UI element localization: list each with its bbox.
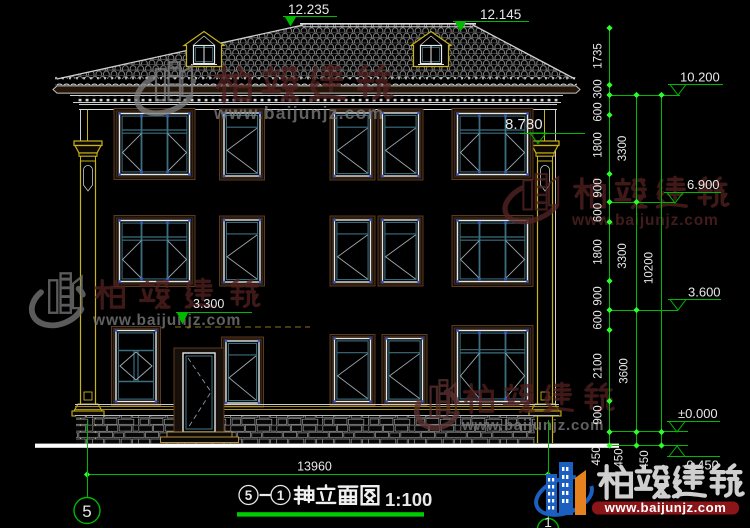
svg-text:12.235: 12.235 <box>288 2 329 17</box>
svg-text:1: 1 <box>277 488 285 503</box>
svg-text:900: 900 <box>593 286 605 305</box>
svg-text:3600: 3600 <box>619 358 631 384</box>
svg-text:www.baijunjz.com: www.baijunjz.com <box>213 103 384 123</box>
svg-text:www.baijunjz.com: www.baijunjz.com <box>604 500 727 515</box>
svg-text:www.baijunjz.com: www.baijunjz.com <box>461 417 604 434</box>
svg-text:±0.000: ±0.000 <box>678 406 718 421</box>
svg-text:12.145: 12.145 <box>480 7 521 22</box>
svg-text:3300: 3300 <box>617 243 629 269</box>
svg-text:2100: 2100 <box>593 353 605 379</box>
svg-text:900: 900 <box>593 405 605 424</box>
svg-text:5: 5 <box>245 488 253 503</box>
svg-text:13960: 13960 <box>297 460 332 474</box>
svg-text:3300: 3300 <box>617 136 629 162</box>
svg-text:3.300: 3.300 <box>193 297 224 311</box>
svg-text:5: 5 <box>82 502 91 521</box>
svg-text:600: 600 <box>593 102 605 121</box>
svg-text:300: 300 <box>593 79 605 98</box>
svg-text:10.200: 10.200 <box>680 70 720 85</box>
svg-text:6.900: 6.900 <box>687 177 720 192</box>
svg-text:450: 450 <box>591 446 603 465</box>
svg-text:1:100: 1:100 <box>385 489 432 510</box>
svg-text:600: 600 <box>593 310 605 329</box>
svg-text:450: 450 <box>614 448 626 467</box>
svg-text:1800: 1800 <box>593 239 605 265</box>
svg-text:600: 600 <box>593 203 605 222</box>
svg-text:3.600: 3.600 <box>688 285 721 300</box>
svg-text:1800: 1800 <box>593 132 605 158</box>
svg-text:900: 900 <box>593 178 605 197</box>
svg-text:1735: 1735 <box>593 43 605 69</box>
svg-text:1: 1 <box>544 514 552 528</box>
svg-text:10200: 10200 <box>644 252 656 284</box>
svg-text:8.780: 8.780 <box>505 116 543 133</box>
